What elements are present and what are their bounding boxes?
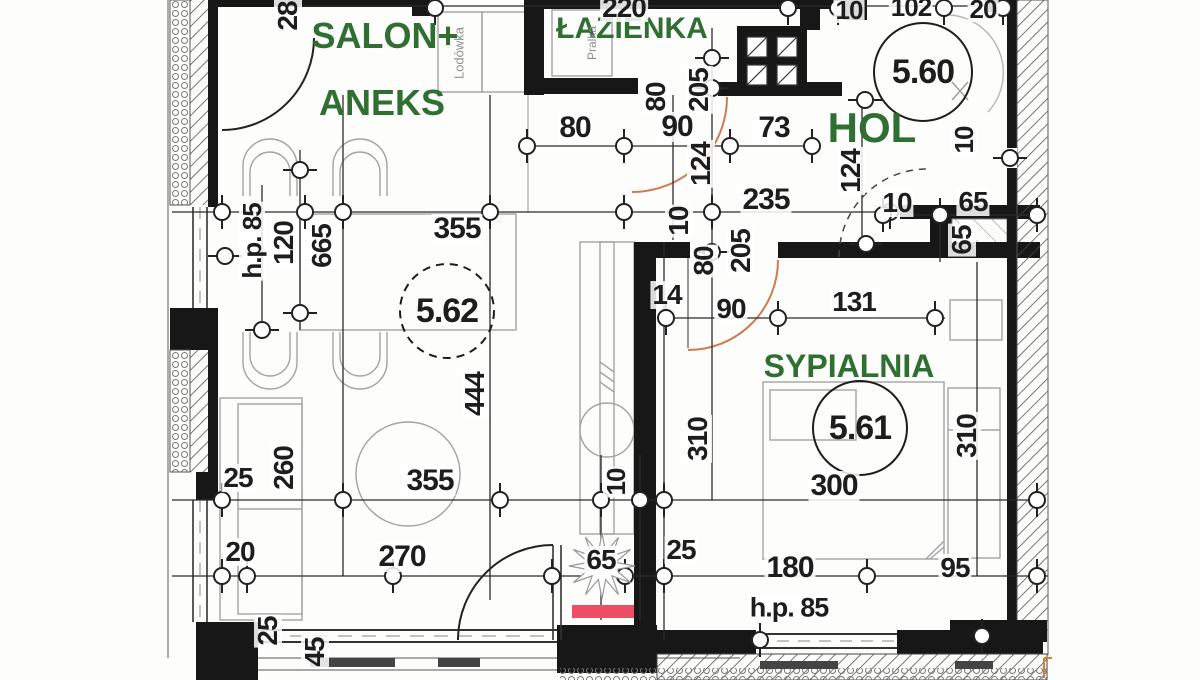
- dimension-label: 45: [301, 635, 329, 668]
- dimension-label: 102: [889, 0, 933, 20]
- dimension-label: 65: [584, 546, 617, 574]
- dimension-label: 355: [404, 466, 455, 496]
- room-number: 5.62: [416, 294, 478, 328]
- dimension-label: 10: [880, 189, 913, 217]
- room-label: SYPIALNIA: [764, 350, 935, 382]
- appliance-label: Lodówka: [453, 27, 466, 79]
- dimension-label: 80: [642, 80, 670, 113]
- dimension-label: 10: [603, 467, 629, 498]
- room-label: ANEKS: [319, 85, 445, 121]
- room-label: SALON+: [311, 18, 458, 54]
- dimension-label: 80: [690, 244, 718, 277]
- dimension-label: 180: [764, 553, 815, 583]
- labels-layer: SALON+ANEKSŁAZIENKAHOLSYPIALNIA5.605.625…: [0, 0, 1200, 680]
- dimension-label: 10: [834, 0, 865, 23]
- dimension-label: 95: [938, 554, 971, 582]
- dimension-label: h.p. 85: [239, 201, 265, 280]
- dimension-label: 65: [948, 223, 976, 256]
- dimension-label: 235: [740, 185, 791, 215]
- dimension-label: 120: [270, 219, 298, 267]
- dimension-label: 10: [951, 125, 977, 156]
- dimension-label: 310: [953, 412, 981, 460]
- dimension-label: 90: [659, 112, 694, 142]
- room-label: HOL: [828, 107, 917, 149]
- dimension-label: 20: [968, 0, 999, 22]
- dimension-label: 310: [684, 415, 712, 463]
- dimension-label: 131: [830, 288, 878, 316]
- dimension-label: 260: [270, 444, 298, 492]
- dimension-label: 205: [727, 227, 755, 275]
- room-number: 5.61: [829, 411, 891, 445]
- dimension-label: 20: [223, 538, 256, 566]
- dimension-label: 270: [376, 542, 427, 572]
- dimension-label: 90: [714, 295, 747, 323]
- dimension-label: h.p. 85: [748, 595, 831, 622]
- dimension-label: 28: [274, 0, 302, 33]
- room-number: 5.60: [892, 55, 954, 89]
- floor-plan-page: SALON+ANEKSŁAZIENKAHOLSYPIALNIA5.605.625…: [0, 0, 1200, 680]
- dimension-label: 220: [600, 0, 648, 22]
- dimension-label: 300: [808, 471, 859, 501]
- dimension-label: 665: [308, 222, 336, 270]
- dimension-label: 355: [431, 214, 482, 244]
- dimension-label: 25: [254, 614, 282, 647]
- dimension-label: 73: [756, 113, 791, 143]
- dimension-label: 10: [665, 204, 693, 237]
- dimension-label: 25: [664, 536, 697, 564]
- dimension-label: 80: [557, 113, 592, 143]
- dimension-label: 124: [687, 140, 715, 188]
- dimension-label: 25: [221, 464, 254, 492]
- appliance-label: Pralka: [586, 26, 598, 60]
- dimension-label: 205: [685, 66, 713, 114]
- dimension-label: 14: [650, 281, 683, 309]
- dimension-label: 65: [956, 188, 989, 216]
- dimension-label: 124: [837, 147, 865, 195]
- dimension-label: 444: [461, 370, 489, 418]
